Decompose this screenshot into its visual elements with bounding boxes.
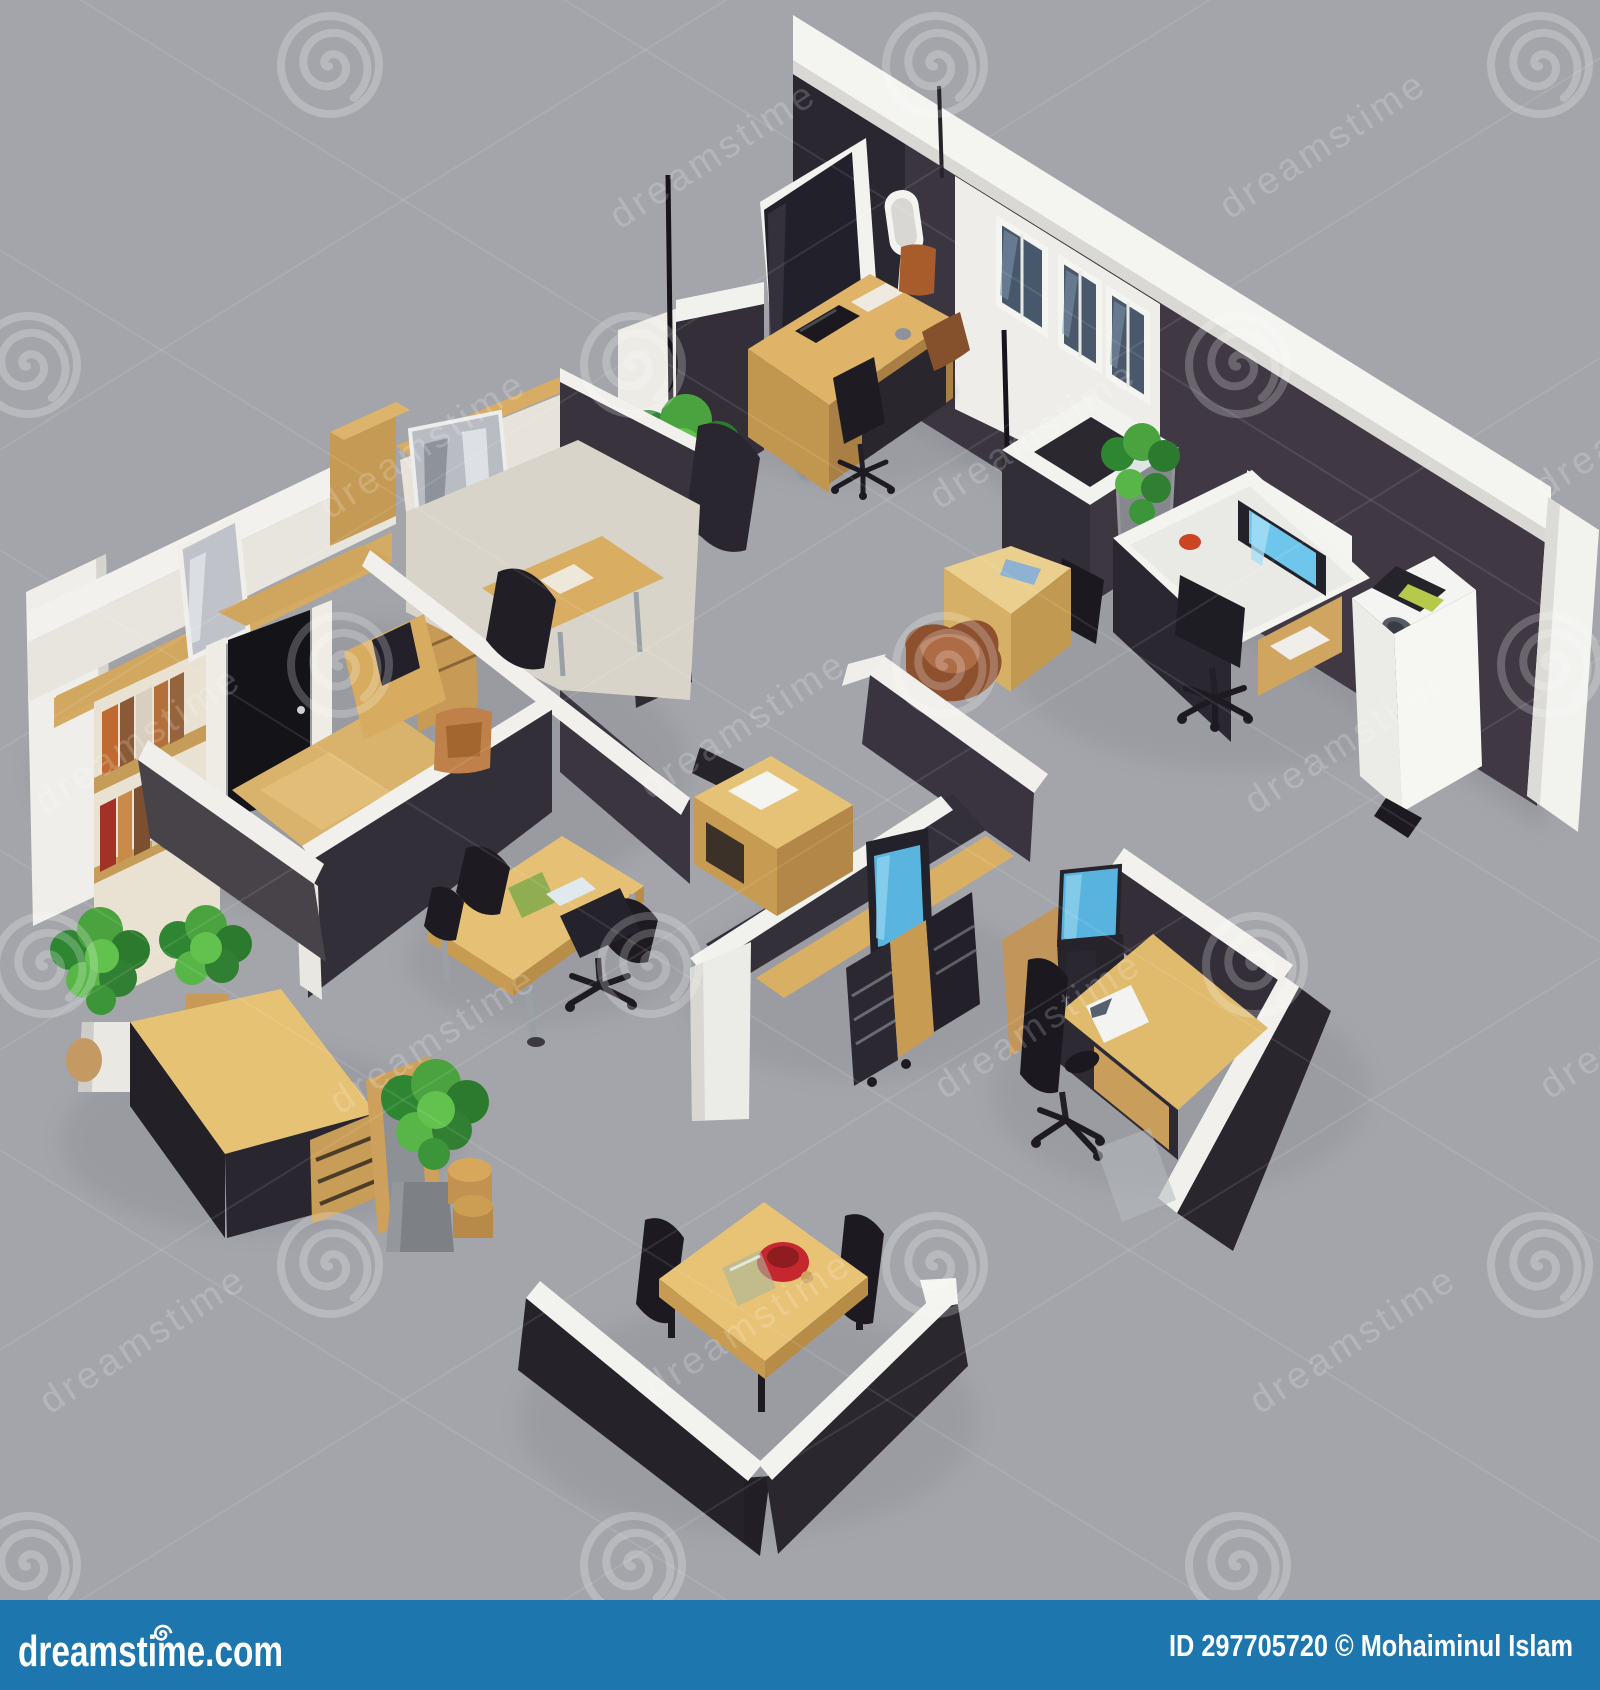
- svg-text:dreamstime.com: dreamstime.com: [18, 1627, 283, 1676]
- svg-text:ID 297705720 © Mohaiminul Isla: ID 297705720 © Mohaiminul Islam: [1169, 1628, 1573, 1663]
